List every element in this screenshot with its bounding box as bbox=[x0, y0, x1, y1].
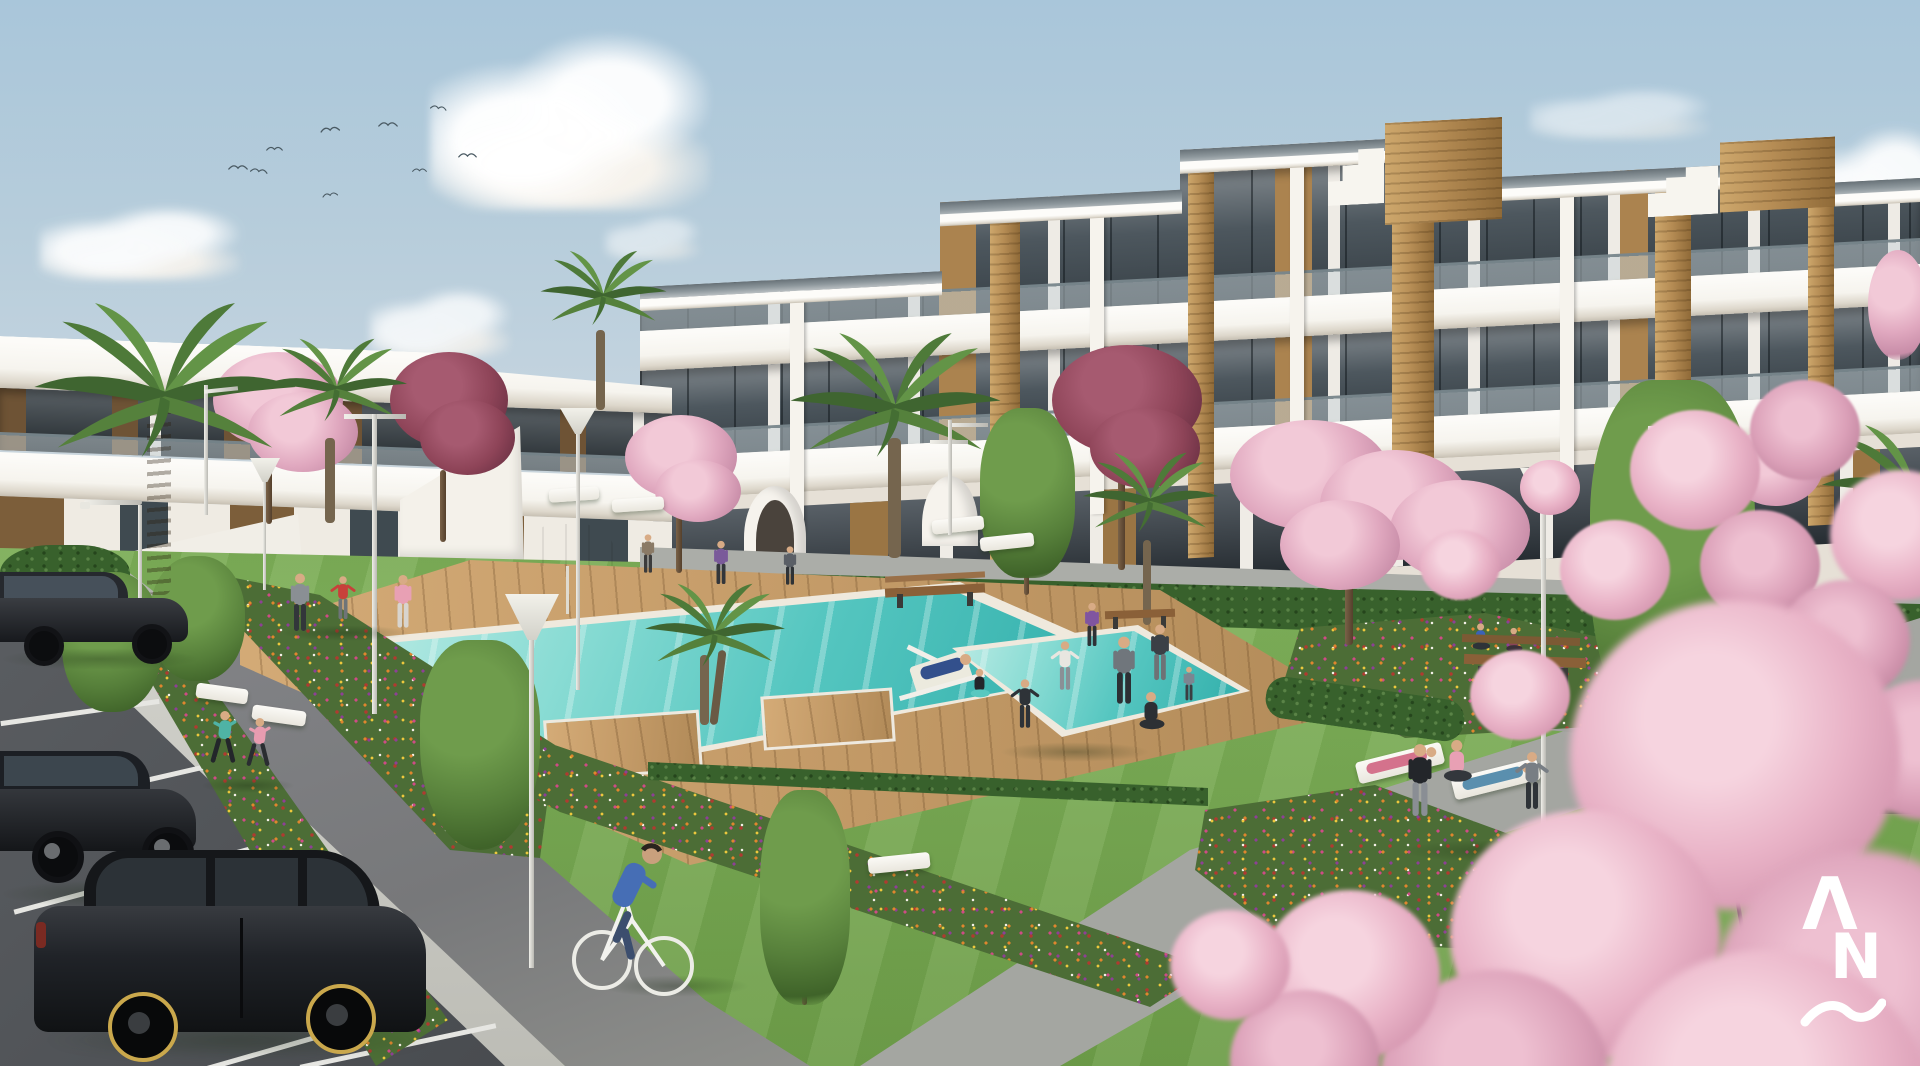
cloud bbox=[40, 200, 240, 280]
parked-sedan-partial bbox=[0, 568, 190, 668]
logo-wave-icon bbox=[1800, 996, 1886, 1030]
arms-out-exerciser bbox=[1008, 658, 1042, 750]
gray-hoodie-exerciser bbox=[1110, 622, 1138, 720]
parasol-pole bbox=[566, 566, 569, 614]
palm-tree bbox=[1815, 415, 1920, 545]
child-lawn bbox=[1182, 666, 1196, 702]
street-lamp bbox=[576, 434, 580, 690]
parasol-canopy bbox=[521, 524, 617, 566]
car-door-line bbox=[240, 918, 243, 1018]
car-wheel-hub bbox=[128, 1012, 150, 1034]
palm-tree bbox=[640, 575, 790, 675]
cyclist-blue-sweater bbox=[560, 800, 700, 1000]
arm-up-stretcher-white-tee bbox=[1048, 614, 1082, 718]
bench-leg bbox=[1478, 666, 1486, 694]
car-window bbox=[96, 858, 368, 908]
car-window-pillar bbox=[298, 858, 307, 908]
logo-letter-n: N bbox=[1830, 926, 1882, 988]
arms-up-man-gray bbox=[1512, 712, 1552, 850]
green-tree-tall bbox=[1590, 380, 1755, 740]
walker-purple bbox=[712, 540, 730, 586]
low-hedge bbox=[1808, 738, 1920, 814]
walker-small bbox=[640, 534, 656, 574]
tree-trunk bbox=[440, 470, 446, 542]
car-wheel bbox=[24, 626, 64, 666]
street-lamp-hook bbox=[84, 500, 142, 505]
bench-back bbox=[885, 571, 985, 582]
jogger-teal bbox=[210, 692, 238, 786]
bird-icon bbox=[458, 150, 477, 159]
bench-leg bbox=[967, 592, 973, 606]
walker-pink-top bbox=[392, 572, 414, 632]
developer-logo-watermark: Λ N bbox=[1798, 868, 1898, 1028]
car-window bbox=[4, 576, 118, 598]
green-sapling bbox=[760, 790, 850, 1005]
standing-woman-right bbox=[1405, 724, 1435, 838]
sun-platform bbox=[760, 687, 895, 750]
cherry-blossom-tree bbox=[1728, 428, 1823, 506]
walker-purple-2 bbox=[1083, 600, 1101, 650]
street-lamp bbox=[948, 420, 952, 535]
parked-hatchback bbox=[30, 848, 430, 1066]
rooftop-wood-tower bbox=[1385, 117, 1502, 225]
bench-with-couple bbox=[1462, 606, 1592, 702]
bird-icon bbox=[250, 165, 269, 175]
car-taillight bbox=[36, 922, 46, 948]
cherry-blossom-tree-large bbox=[1280, 500, 1400, 590]
palm-trunk bbox=[596, 330, 605, 410]
bench bbox=[885, 568, 985, 608]
street-lamp bbox=[1668, 424, 1672, 522]
street-lamp bbox=[263, 482, 266, 590]
bird-icon bbox=[266, 144, 283, 152]
walker-dark bbox=[782, 544, 798, 588]
cherry-blossom-tree-large bbox=[1390, 480, 1530, 580]
bird-icon bbox=[228, 162, 248, 171]
palm-trunk bbox=[325, 438, 335, 523]
street-lamp bbox=[204, 385, 208, 515]
car-wheel-hub bbox=[326, 1004, 348, 1026]
walker-gray bbox=[288, 570, 312, 636]
bench-leg bbox=[897, 594, 903, 608]
jogger-pink bbox=[246, 700, 272, 788]
street-lamp bbox=[372, 414, 377, 714]
street-lamp-head bbox=[80, 502, 90, 509]
street-lamp bbox=[529, 640, 534, 968]
street-lamp-arm bbox=[948, 423, 988, 427]
stretching-man-red bbox=[328, 566, 358, 630]
seated-yoga-woman bbox=[1136, 690, 1170, 744]
cherry-blossom-tree bbox=[655, 460, 741, 522]
bird-icon bbox=[320, 123, 341, 134]
shadow bbox=[1400, 840, 1590, 862]
squatting-woman-teal bbox=[968, 660, 994, 716]
car-window-pillar bbox=[206, 858, 215, 908]
bird-icon bbox=[378, 119, 398, 128]
unit-divider bbox=[1560, 173, 1574, 504]
bird-icon bbox=[412, 166, 427, 173]
car-wheel bbox=[132, 624, 172, 664]
palm-tree bbox=[783, 325, 1008, 465]
walking-man-lawn bbox=[1148, 624, 1172, 682]
cherry-blossom-tree bbox=[1868, 250, 1920, 360]
street-lamp bbox=[1874, 700, 1879, 816]
bird-icon bbox=[322, 189, 339, 199]
rooftop-wood-tower bbox=[1720, 136, 1835, 212]
car-window bbox=[4, 756, 138, 786]
green-tree bbox=[420, 640, 540, 850]
cloud bbox=[1530, 84, 1710, 139]
bench-leg bbox=[1560, 668, 1568, 696]
seated-woman-pink bbox=[1440, 738, 1478, 798]
cloud bbox=[430, 20, 710, 210]
architectural-render: Λ N bbox=[0, 0, 1920, 1066]
palm-tree bbox=[536, 242, 671, 334]
maroon-leaf-tree bbox=[420, 400, 515, 475]
palm-tree bbox=[1078, 445, 1223, 540]
